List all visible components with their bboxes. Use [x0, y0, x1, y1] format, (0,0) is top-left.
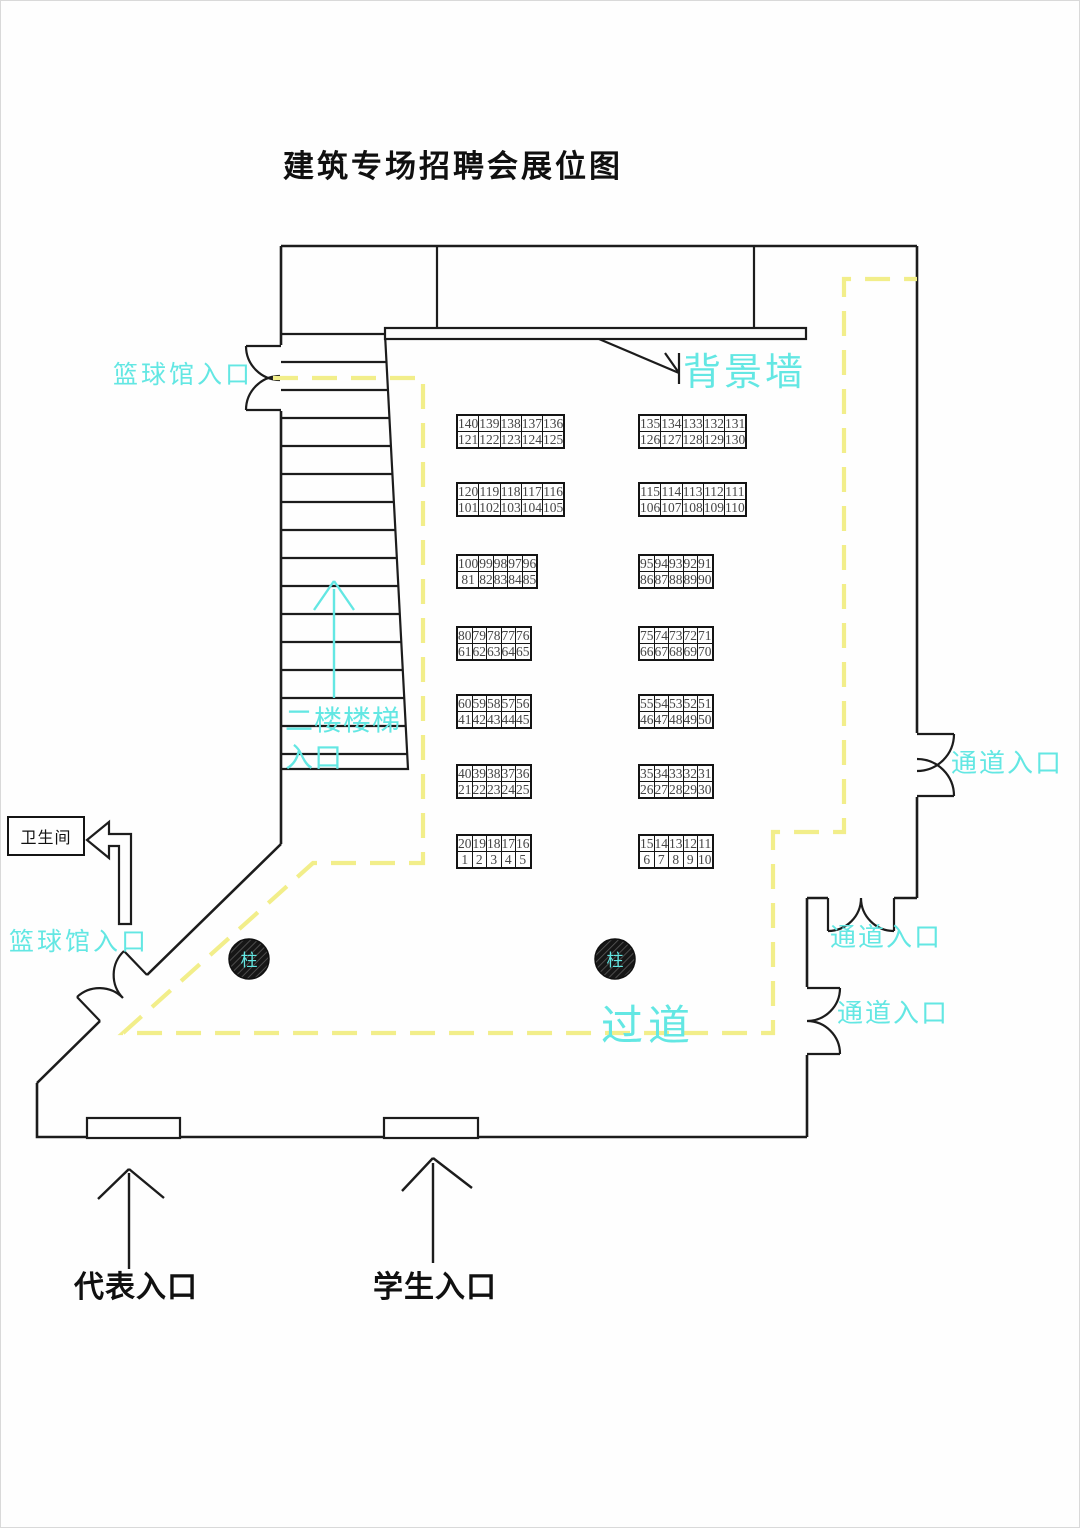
- booth-cell: 5: [516, 852, 531, 869]
- booth-cell: 112: [703, 483, 724, 500]
- booth-cell: 15: [639, 835, 654, 852]
- booth-cell: 46: [639, 712, 654, 729]
- booth-cell: 78: [487, 627, 502, 644]
- booth-cell: 2: [472, 852, 487, 869]
- booth-cell: 138: [500, 415, 521, 432]
- booth-cell: 40: [457, 765, 472, 782]
- booth-cell: 53: [669, 695, 684, 712]
- booth-cell: 47: [654, 712, 669, 729]
- booth-cell: 94: [654, 555, 669, 572]
- representative-entrance-canopy: [87, 1118, 180, 1138]
- booth-cell: 101: [457, 500, 479, 517]
- booth-cell: 135: [639, 415, 661, 432]
- booth-cell: 86: [639, 572, 654, 589]
- booth-cell: 106: [639, 500, 661, 517]
- door-passage-3: [807, 988, 840, 1054]
- stairs-entrance-label-line1: 二楼楼梯: [285, 703, 401, 740]
- booth-cell: 21: [457, 782, 472, 799]
- booth-cell: 105: [543, 500, 565, 517]
- booth-grid-left-band6: 40393837362122232425: [456, 764, 532, 799]
- booth-cell: 77: [501, 627, 516, 644]
- booth-cell: 43: [487, 712, 502, 729]
- booth-cell: 80: [457, 627, 472, 644]
- stairs-up-arrow: [314, 581, 354, 698]
- booth-cell: 121: [457, 432, 479, 449]
- booth-grid-left-band1: 140139138137136121122123124125: [456, 414, 565, 449]
- booth-cell: 117: [521, 483, 542, 500]
- booth-cell: 25: [516, 782, 531, 799]
- booth-cell: 79: [472, 627, 487, 644]
- booth-grid-left-band3: 100999897968182838485: [456, 554, 538, 589]
- booth-cell: 9: [683, 852, 698, 869]
- booth-grid-left-band2: 120119118117116101102103104105: [456, 482, 565, 517]
- booth-cell: 113: [682, 483, 703, 500]
- booth-cell: 33: [669, 765, 684, 782]
- booth-cell: 127: [661, 432, 682, 449]
- booth-cell: 50: [698, 712, 713, 729]
- booth-cell: 38: [487, 765, 502, 782]
- booth-cell: 109: [703, 500, 724, 517]
- booth-cell: 36: [516, 765, 531, 782]
- booth-cell: 55: [639, 695, 654, 712]
- booth-cell: 16: [516, 835, 531, 852]
- restroom-label: 卫生间: [20, 824, 71, 848]
- booth-cell: 20: [457, 835, 472, 852]
- booth-cell: 90: [698, 572, 713, 589]
- booth-cell: 83: [493, 572, 508, 589]
- basketball-entrance-bottom-label: 篮球馆入口: [9, 929, 149, 958]
- booth-cell: 7: [654, 852, 669, 869]
- booth-cell: 75: [639, 627, 654, 644]
- booth-cell: 69: [683, 644, 698, 661]
- booth-cell: 93: [669, 555, 684, 572]
- booth-cell: 84: [508, 572, 523, 589]
- page-title: 建筑专场招聘会展位图: [283, 149, 623, 185]
- booth-cell: 81: [457, 572, 479, 589]
- booth-cell: 64: [501, 644, 516, 661]
- booth-cell: 108: [682, 500, 703, 517]
- booth-cell: 52: [683, 695, 698, 712]
- booth-cell: 91: [698, 555, 713, 572]
- booth-cell: 110: [725, 500, 746, 517]
- passage-entrance-label-2: 通道入口: [830, 923, 942, 953]
- booth-cell: 104: [521, 500, 542, 517]
- booth-cell: 82: [479, 572, 494, 589]
- booth-cell: 57: [501, 695, 516, 712]
- booth-cell: 99: [479, 555, 494, 572]
- background-wall-leader-arrow: [599, 339, 679, 384]
- booth-cell: 134: [661, 415, 682, 432]
- booth-cell: 60: [457, 695, 472, 712]
- booth-cell: 56: [516, 695, 531, 712]
- booth-cell: 100: [457, 555, 479, 572]
- booth-cell: 22: [472, 782, 487, 799]
- booth-cell: 124: [521, 432, 542, 449]
- booth-cell: 44: [501, 712, 516, 729]
- booth-cell: 6: [639, 852, 654, 869]
- booth-cell: 14: [654, 835, 669, 852]
- booth-cell: 8: [669, 852, 684, 869]
- restroom-arrow: [87, 822, 131, 924]
- booth-cell: 34: [654, 765, 669, 782]
- booth-cell: 130: [725, 432, 747, 449]
- passage-entrance-label-1: 通道入口: [951, 749, 1063, 779]
- booth-cell: 72: [683, 627, 698, 644]
- door-basketball-bottom: [77, 951, 147, 1021]
- booth-cell: 139: [479, 415, 500, 432]
- booth-cell: 68: [669, 644, 684, 661]
- booth-cell: 115: [639, 483, 661, 500]
- booth-cell: 65: [516, 644, 531, 661]
- booth-cell: 87: [654, 572, 669, 589]
- booth-cell: 137: [521, 415, 542, 432]
- booth-cell: 26: [639, 782, 654, 799]
- booth-cell: 13: [669, 835, 684, 852]
- booth-cell: 54: [654, 695, 669, 712]
- booth-cell: 24: [501, 782, 516, 799]
- booth-cell: 63: [487, 644, 502, 661]
- column-right-label: 柱: [607, 951, 624, 970]
- booth-grid-left-band5: 60595857564142434445: [456, 694, 532, 729]
- booth-cell: 29: [683, 782, 698, 799]
- booth-grid-right-band2: 115114113112111106107108109110: [638, 482, 747, 517]
- booth-cell: 37: [501, 765, 516, 782]
- booth-cell: 102: [479, 500, 500, 517]
- booth-cell: 125: [543, 432, 565, 449]
- booth-cell: 76: [516, 627, 531, 644]
- booth-cell: 95: [639, 555, 654, 572]
- booth-cell: 61: [457, 644, 472, 661]
- booth-cell: 4: [501, 852, 516, 869]
- booth-cell: 129: [703, 432, 724, 449]
- booth-cell: 128: [682, 432, 703, 449]
- booth-cell: 66: [639, 644, 654, 661]
- background-wall-label: 背景墙: [683, 352, 806, 396]
- booth-cell: 140: [457, 415, 479, 432]
- booth-grid-right-band7: 1514131211678910: [638, 834, 714, 869]
- booth-cell: 120: [457, 483, 479, 500]
- column-left-label: 柱: [241, 951, 258, 970]
- booth-cell: 41: [457, 712, 472, 729]
- booth-cell: 23: [487, 782, 502, 799]
- booth-cell: 51: [698, 695, 713, 712]
- column-left: 柱: [229, 939, 269, 979]
- booth-grid-right-band6: 35343332312627282930: [638, 764, 714, 799]
- booth-cell: 119: [479, 483, 500, 500]
- booth-grid-right-band3: 95949392918687888990: [638, 554, 714, 589]
- booth-cell: 118: [500, 483, 521, 500]
- booth-cell: 132: [703, 415, 724, 432]
- column-right: 柱: [595, 939, 635, 979]
- booth-cell: 35: [639, 765, 654, 782]
- booth-cell: 96: [522, 555, 537, 572]
- student-entrance-label: 学生入口: [373, 1271, 497, 1306]
- booth-cell: 58: [487, 695, 502, 712]
- booth-cell: 18: [487, 835, 502, 852]
- booth-cell: 103: [500, 500, 521, 517]
- booth-cell: 48: [669, 712, 684, 729]
- booth-cell: 32: [683, 765, 698, 782]
- booth-cell: 107: [661, 500, 682, 517]
- booth-cell: 11: [698, 835, 713, 852]
- booth-grid-right-band1: 135134133132131126127128129130: [638, 414, 747, 449]
- stairs-entrance-label: 二楼楼梯 入口: [285, 703, 401, 777]
- booth-cell: 49: [683, 712, 698, 729]
- basketball-entrance-top-label: 篮球馆入口: [113, 362, 253, 391]
- booth-cell: 123: [500, 432, 521, 449]
- booth-cell: 42: [472, 712, 487, 729]
- aisle-label: 过道: [601, 1003, 695, 1051]
- booth-cell: 114: [661, 483, 682, 500]
- booth-cell: 98: [493, 555, 508, 572]
- booth-cell: 19: [472, 835, 487, 852]
- booth-cell: 28: [669, 782, 684, 799]
- booth-cell: 136: [543, 415, 565, 432]
- booth-cell: 92: [683, 555, 698, 572]
- booth-cell: 30: [698, 782, 713, 799]
- booth-cell: 10: [698, 852, 713, 869]
- booth-cell: 74: [654, 627, 669, 644]
- booth-cell: 17: [501, 835, 516, 852]
- booth-cell: 1: [457, 852, 472, 869]
- student-entrance-arrow: [402, 1158, 472, 1263]
- booth-cell: 73: [669, 627, 684, 644]
- booth-cell: 111: [725, 483, 746, 500]
- booth-cell: 67: [654, 644, 669, 661]
- booth-cell: 3: [487, 852, 502, 869]
- booth-cell: 70: [698, 644, 713, 661]
- booth-cell: 88: [669, 572, 684, 589]
- booth-cell: 131: [725, 415, 747, 432]
- door-passage-1: [917, 734, 954, 796]
- booth-cell: 62: [472, 644, 487, 661]
- booth-cell: 71: [698, 627, 713, 644]
- booth-cell: 31: [698, 765, 713, 782]
- booth-cell: 133: [682, 415, 703, 432]
- booth-cell: 27: [654, 782, 669, 799]
- floorplan-page: 柱 柱 建筑专场招聘会展位图 篮球馆入口 背景墙 二楼楼梯 入口 通道入口 通道…: [0, 0, 1080, 1528]
- booth-grid-right-band5: 55545352514647484950: [638, 694, 714, 729]
- booth-cell: 59: [472, 695, 487, 712]
- booth-cell: 97: [508, 555, 523, 572]
- restroom-box: 卫生间: [7, 816, 85, 856]
- booth-cell: 126: [639, 432, 661, 449]
- stairs-entrance-label-line2: 入口: [285, 740, 401, 777]
- booth-cell: 39: [472, 765, 487, 782]
- passage-entrance-label-3: 通道入口: [837, 999, 949, 1029]
- student-entrance-canopy: [384, 1118, 478, 1138]
- booth-cell: 116: [543, 483, 565, 500]
- booth-cell: 12: [683, 835, 698, 852]
- booth-cell: 85: [522, 572, 537, 589]
- booth-cell: 45: [516, 712, 531, 729]
- booth-grid-left-band7: 201918171612345: [456, 834, 532, 869]
- booth-grid-left-band4: 80797877766162636465: [456, 626, 532, 661]
- booth-cell: 89: [683, 572, 698, 589]
- booth-grid-right-band4: 75747372716667686970: [638, 626, 714, 661]
- booth-cell: 122: [479, 432, 500, 449]
- representative-entrance-arrow: [98, 1169, 164, 1269]
- representative-entrance-label: 代表入口: [74, 1271, 198, 1306]
